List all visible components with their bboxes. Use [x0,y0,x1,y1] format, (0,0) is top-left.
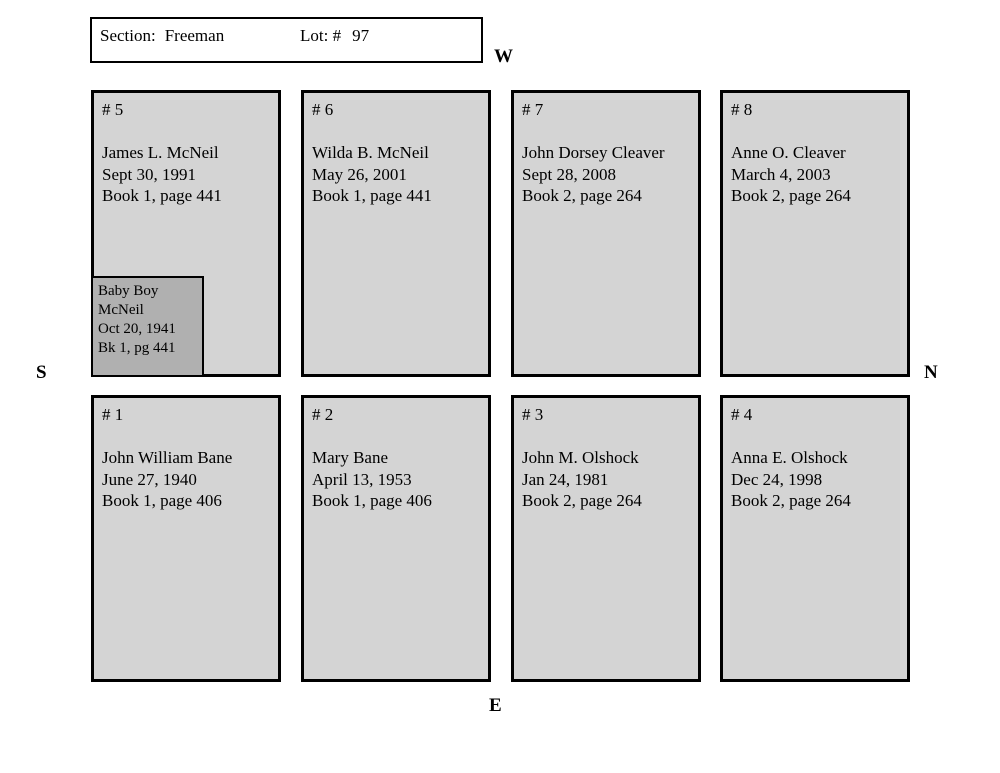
plot-box-7: # 7 John Dorsey Cleaver Sept 28, 2008 Bo… [511,90,701,377]
plot-number: # 3 [522,405,698,425]
inner-date: Oct 20, 1941 [98,320,202,339]
inner-plot-box-baby-boy: Baby Boy McNeil Oct 20, 1941 Bk 1, pg 44… [91,276,204,377]
plot-number: # 7 [522,100,698,120]
plot-occupant-name: Mary Bane [312,447,488,469]
plot-occupant-name: Anne O. Cleaver [731,142,907,164]
plot-book-page: Book 1, page 441 [312,185,488,207]
plot-box-3: # 3 John M. Olshock Jan 24, 1981 Book 2,… [511,395,701,682]
plot-record: James L. McNeil Sept 30, 1991 Book 1, pa… [102,142,278,207]
plot-record: Mary Bane April 13, 1953 Book 1, page 40… [312,447,488,512]
plot-date: Dec 24, 1998 [731,469,907,491]
inner-book-page: Bk 1, pg 441 [98,339,202,358]
compass-south-label: S [36,362,47,384]
plot-occupant-name: John William Bane [102,447,278,469]
plot-date: Sept 30, 1991 [102,164,278,186]
lot-label: Lot: # [300,26,341,45]
plot-occupant-name: John M. Olshock [522,447,698,469]
plot-book-page: Book 2, page 264 [731,185,907,207]
plot-box-8: # 8 Anne O. Cleaver March 4, 2003 Book 2… [720,90,910,377]
cemetery-lot-map: { "header": { "section_label": "Section:… [0,0,1000,773]
plot-book-page: Book 2, page 264 [522,185,698,207]
plot-number: # 5 [102,100,278,120]
section-lot-header: Section:FreemanLot: #97 [90,17,483,63]
plot-book-page: Book 2, page 264 [522,490,698,512]
plot-occupant-name: James L. McNeil [102,142,278,164]
plot-date: Jan 24, 1981 [522,469,698,491]
lot-value: 97 [352,26,369,45]
plot-book-page: Book 2, page 264 [731,490,907,512]
plot-occupant-name: Anna E. Olshock [731,447,907,469]
plot-record: John Dorsey Cleaver Sept 28, 2008 Book 2… [522,142,698,207]
plot-date: June 27, 1940 [102,469,278,491]
plot-box-2: # 2 Mary Bane April 13, 1953 Book 1, pag… [301,395,491,682]
section-field: Section:Freeman [100,26,300,46]
inner-occupant-name-line1: Baby Boy [98,282,202,301]
plot-record: Anne O. Cleaver March 4, 2003 Book 2, pa… [731,142,907,207]
plot-book-page: Book 1, page 406 [312,490,488,512]
plot-record: John M. Olshock Jan 24, 1981 Book 2, pag… [522,447,698,512]
plot-box-5: # 5 James L. McNeil Sept 30, 1991 Book 1… [91,90,281,377]
plot-box-4: # 4 Anna E. Olshock Dec 24, 1998 Book 2,… [720,395,910,682]
plot-book-page: Book 1, page 441 [102,185,278,207]
compass-west-label: W [494,46,513,68]
plot-box-1: # 1 John William Bane June 27, 1940 Book… [91,395,281,682]
plot-record: Wilda B. McNeil May 26, 2001 Book 1, pag… [312,142,488,207]
plot-number: # 2 [312,405,488,425]
plot-date: May 26, 2001 [312,164,488,186]
compass-north-label: N [924,362,938,384]
plot-date: April 13, 1953 [312,469,488,491]
plot-number: # 4 [731,405,907,425]
plot-number: # 8 [731,100,907,120]
lot-field: Lot: #97 [300,26,369,46]
plot-occupant-name: Wilda B. McNeil [312,142,488,164]
plot-date: Sept 28, 2008 [522,164,698,186]
section-value: Freeman [165,26,224,45]
plot-date: March 4, 2003 [731,164,907,186]
plot-record: John William Bane June 27, 1940 Book 1, … [102,447,278,512]
plot-occupant-name: John Dorsey Cleaver [522,142,698,164]
section-label: Section: [100,26,156,45]
plot-number: # 6 [312,100,488,120]
compass-east-label: E [489,695,502,717]
plot-number: # 1 [102,405,278,425]
inner-occupant-name-line2: McNeil [98,301,202,320]
plot-box-6: # 6 Wilda B. McNeil May 26, 2001 Book 1,… [301,90,491,377]
plot-record: Anna E. Olshock Dec 24, 1998 Book 2, pag… [731,447,907,512]
plot-book-page: Book 1, page 406 [102,490,278,512]
